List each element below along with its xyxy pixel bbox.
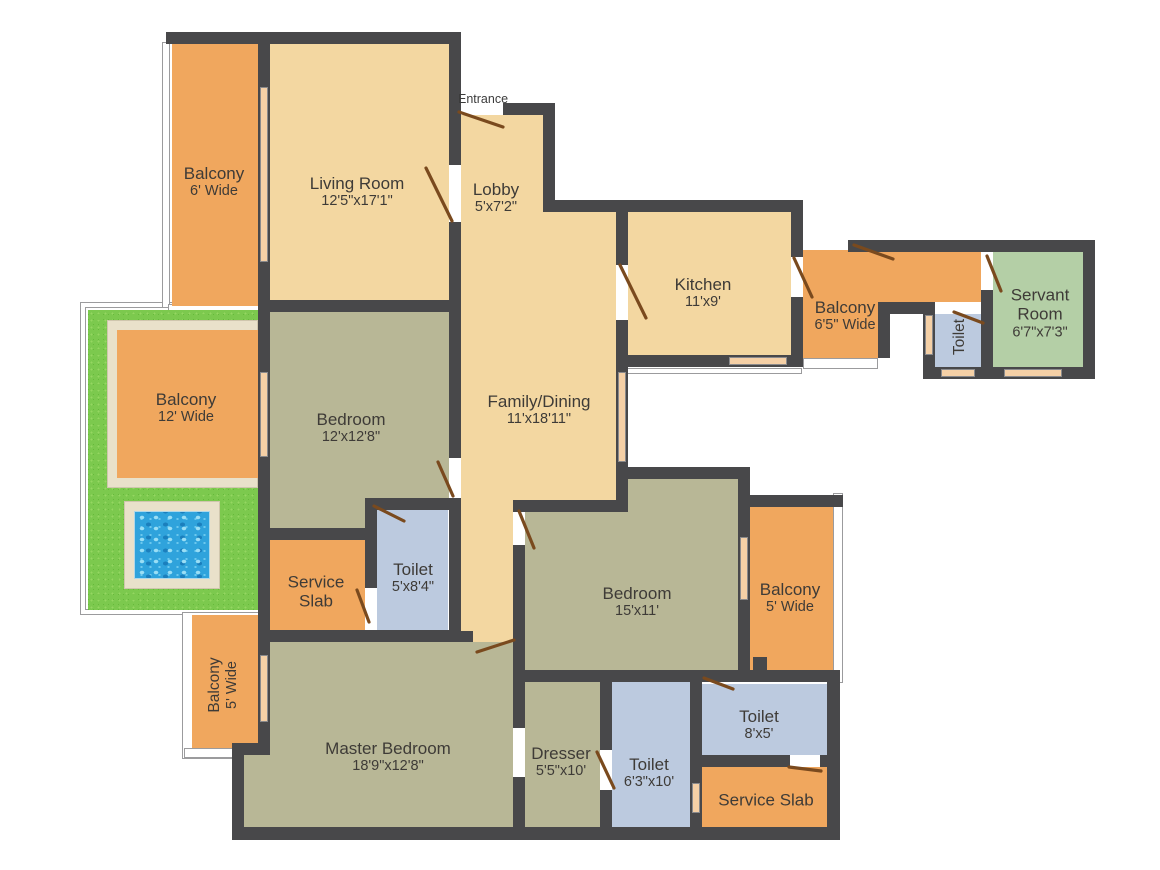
label-line: Room <box>1011 305 1070 324</box>
room-label-bedroom-15: Bedroom15'x11' <box>603 584 672 620</box>
label-line: Slab <box>288 592 345 611</box>
room-label-kitchen: Kitchen11'x9' <box>675 275 732 311</box>
label-line: 5'5"x10' <box>531 763 591 780</box>
label-line: Living Room <box>310 174 405 193</box>
room-label-toilet-63: Toilet6'3"x10' <box>624 755 674 791</box>
room-label-bedroom-12: Bedroom12'x12'8" <box>317 410 386 446</box>
label-line: Bedroom <box>603 584 672 603</box>
label-line: 8'x5' <box>739 726 779 743</box>
label-line: 5'x7'2" <box>473 199 519 216</box>
label-line: Balcony <box>206 657 224 712</box>
label-line: Service <box>288 573 345 592</box>
label-line: 6'3"x10' <box>624 774 674 791</box>
label-line: Balcony <box>156 390 216 409</box>
room-label-balcony-5r: Balcony5' Wide <box>760 580 820 616</box>
label-line: 15'x11' <box>603 603 672 620</box>
label-line: 5' Wide <box>760 599 820 616</box>
room-label-entrance: Entrance <box>458 92 508 106</box>
door-swing-lines <box>0 0 1160 870</box>
room-label-servant-room: ServantRoom6'7"x7'3" <box>1011 285 1070 340</box>
label-line: 12'5"x17'1" <box>310 193 405 210</box>
room-label-living-room: Living Room12'5"x17'1" <box>310 174 405 210</box>
label-line: Dresser <box>531 744 591 763</box>
label-line: 6'5" Wide <box>814 317 875 334</box>
label-line: 5' Wide <box>224 657 241 712</box>
label-line: 18'9"x12'8" <box>325 758 451 775</box>
label-line: Bedroom <box>317 410 386 429</box>
label-line: 11'x9' <box>675 294 732 311</box>
room-label-balcony-5l: Balcony5' Wide <box>206 657 240 712</box>
label-line: Toilet <box>392 560 434 579</box>
label-line: 12' Wide <box>156 409 216 426</box>
room-label-toilet-a: Toilet5'x8'4" <box>392 560 434 596</box>
label-line: Balcony <box>814 298 875 317</box>
room-label-toilet-8: Toilet8'x5' <box>739 707 779 743</box>
label-line: Servant <box>1011 285 1070 304</box>
label-line: Toilet <box>624 755 674 774</box>
label-line: 5'x8'4" <box>392 579 434 596</box>
room-label-toilet-small: Toilet <box>951 319 969 355</box>
room-label-balcony-6: Balcony6' Wide <box>184 164 244 200</box>
label-line: Toilet <box>739 707 779 726</box>
room-label-family-dining: Family/Dining11'x18'11" <box>488 392 591 428</box>
room-label-balcony-12: Balcony12' Wide <box>156 390 216 426</box>
label-line: 6' Wide <box>184 183 244 200</box>
label-line: Lobby <box>473 180 519 199</box>
label-line: 12'x12'8" <box>317 429 386 446</box>
label-line: Kitchen <box>675 275 732 294</box>
room-label-service-slab-b: Service Slab <box>718 790 813 809</box>
label-line: Entrance <box>458 92 508 106</box>
label-line: Balcony <box>760 580 820 599</box>
room-label-dresser: Dresser5'5"x10' <box>531 744 591 780</box>
label-line: Service Slab <box>718 790 813 809</box>
label-line: 11'x18'11" <box>488 411 591 428</box>
label-line: Master Bedroom <box>325 739 451 758</box>
label-line: Family/Dining <box>488 392 591 411</box>
room-label-master-bedroom: Master Bedroom18'9"x12'8" <box>325 739 451 775</box>
label-line: Balcony <box>184 164 244 183</box>
room-label-lobby: Lobby5'x7'2" <box>473 180 519 216</box>
label-line: Toilet <box>951 319 969 355</box>
room-label-service-slab-a: ServiceSlab <box>288 573 345 612</box>
floor-plan: Balcony6' WideLiving Room12'5"x17'1"Entr… <box>0 0 1160 870</box>
room-label-balcony-65: Balcony6'5" Wide <box>814 298 875 334</box>
label-line: 6'7"x7'3" <box>1011 324 1070 341</box>
